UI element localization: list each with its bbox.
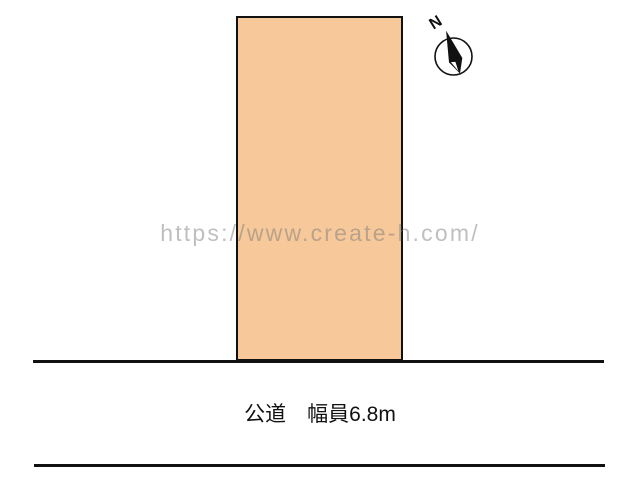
compass-needle [439, 29, 466, 76]
compass-north-icon: N [424, 12, 480, 82]
road-label: 公道 幅員6.8m [0, 398, 640, 428]
road-edge-line-bottom [34, 464, 605, 467]
land-plot-rectangle [236, 16, 403, 362]
compass-n-label: N [427, 13, 446, 34]
road-edge-line-top [33, 360, 604, 363]
watermark: https://www.create-h.com/ [0, 220, 640, 247]
plot-diagram-canvas: https://www.create-h.com/ N 公道 幅員6.8m [0, 0, 640, 480]
